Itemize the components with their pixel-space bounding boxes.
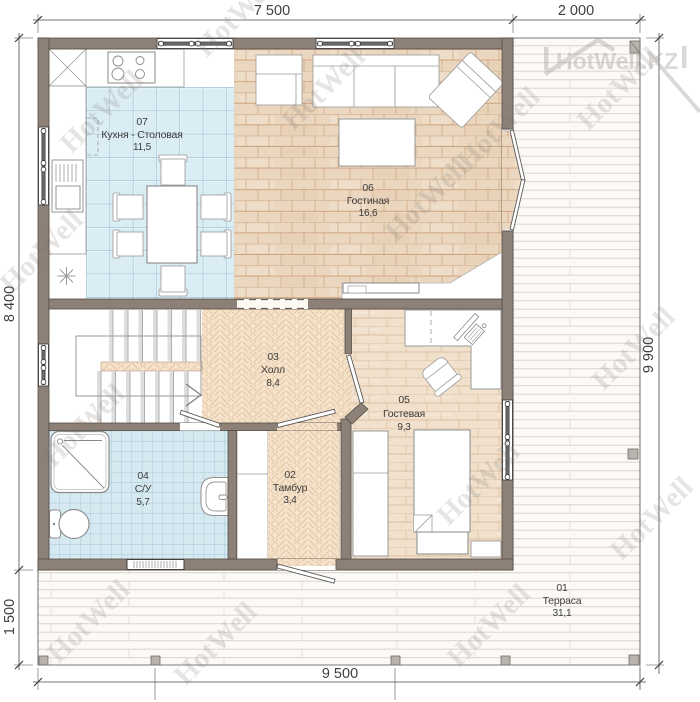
- svg-text:31,1: 31,1: [553, 608, 572, 619]
- svg-text:05: 05: [398, 394, 410, 406]
- svg-text:Гостевая: Гостевая: [383, 408, 425, 420]
- svg-text:3,4: 3,4: [283, 495, 297, 506]
- svg-text:02: 02: [284, 469, 296, 481]
- svg-text:9,3: 9,3: [397, 422, 411, 433]
- svg-text:07: 07: [136, 116, 148, 128]
- svg-text:Терраса: Терраса: [543, 595, 582, 607]
- svg-text:5,7: 5,7: [136, 497, 150, 508]
- svg-text:Тамбур: Тамбур: [273, 482, 308, 494]
- svg-text:11,5: 11,5: [133, 142, 152, 153]
- svg-text:Кухня - Столовая: Кухня - Столовая: [101, 129, 182, 141]
- svg-text:16,6: 16,6: [359, 208, 378, 219]
- svg-text:Гостиная: Гостиная: [347, 195, 389, 207]
- svg-text:03: 03: [267, 351, 279, 363]
- svg-text:Холл: Холл: [261, 364, 285, 376]
- svg-text:04: 04: [137, 470, 149, 482]
- svg-text:8,4: 8,4: [266, 378, 280, 389]
- svg-text:С/У: С/У: [135, 483, 152, 495]
- svg-text:06: 06: [362, 182, 374, 194]
- svg-text:9 500: 9 500: [322, 666, 358, 682]
- svg-text:01: 01: [556, 582, 568, 594]
- svg-text:2 000: 2 000: [558, 3, 594, 19]
- svg-text:HotWell.KZ: HotWell.KZ: [556, 48, 678, 74]
- svg-text:1 500: 1 500: [2, 599, 18, 635]
